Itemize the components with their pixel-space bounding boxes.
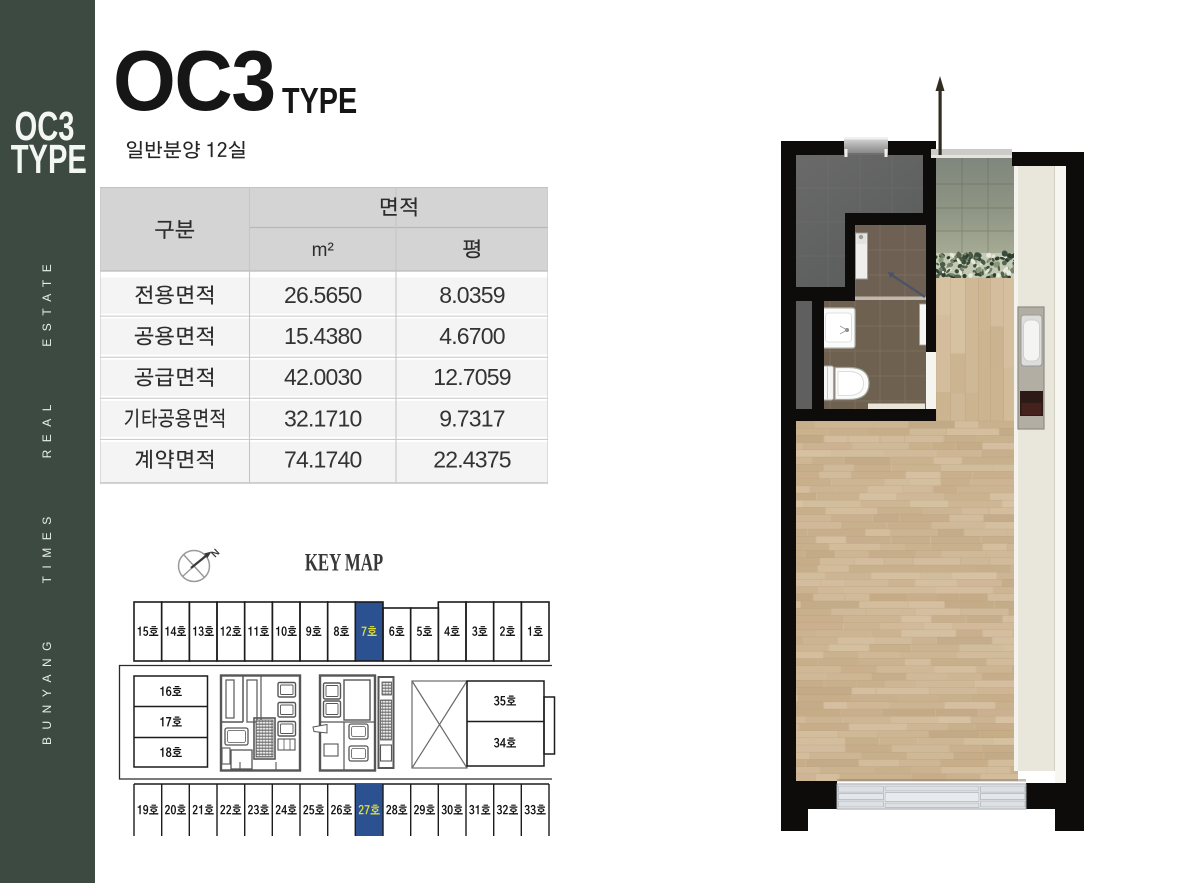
svg-text:12.7059: 12.7059: [433, 364, 511, 390]
svg-text:74.1740: 74.1740: [284, 446, 362, 472]
svg-text:4.6700: 4.6700: [439, 323, 505, 349]
svg-text:N: N: [209, 547, 222, 560]
svg-text:9.7317: 9.7317: [439, 405, 505, 431]
svg-text:26.5650: 26.5650: [284, 282, 362, 308]
svg-text:22.4375: 22.4375: [433, 446, 511, 472]
svg-text:32.1710: 32.1710: [284, 405, 362, 431]
svg-text:m²: m²: [312, 240, 334, 261]
svg-text:15.4380: 15.4380: [284, 323, 362, 349]
svg-text:8.0359: 8.0359: [439, 282, 505, 308]
svg-text:KEY MAP: KEY MAP: [305, 548, 383, 576]
svg-text:42.0030: 42.0030: [284, 364, 362, 390]
